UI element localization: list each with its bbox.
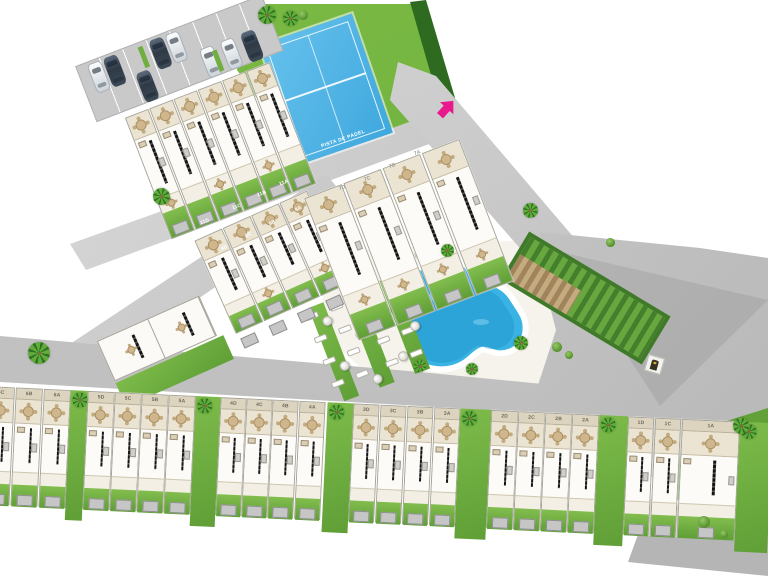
private-garden <box>268 497 293 520</box>
dining-table-icon <box>414 424 426 436</box>
furniture <box>138 140 148 148</box>
rear-terrace <box>431 491 456 505</box>
house-roof <box>569 450 596 499</box>
private-garden <box>403 503 428 526</box>
patio-terrace <box>114 404 140 429</box>
private-garden <box>242 495 267 518</box>
furniture <box>492 449 500 455</box>
furniture <box>368 459 374 468</box>
private-garden <box>0 483 9 506</box>
patio-terrace <box>572 426 598 451</box>
private-garden <box>624 513 649 536</box>
furniture <box>143 433 151 439</box>
palm-tree-icon <box>414 360 426 372</box>
garage-box <box>246 506 263 518</box>
house-roof <box>515 447 542 496</box>
furniture <box>116 431 124 437</box>
furniture <box>162 131 172 139</box>
private-garden <box>110 489 136 512</box>
rear-terrace <box>0 470 10 484</box>
dining-table-icon <box>360 183 374 197</box>
house-roof <box>378 441 404 490</box>
garage-box <box>444 288 463 304</box>
rear-terrace <box>296 485 321 499</box>
furniture <box>103 447 109 456</box>
furniture <box>354 241 363 252</box>
house-roof <box>0 422 12 471</box>
unit-label: 6A <box>54 392 61 398</box>
dining-table-icon <box>399 168 413 182</box>
dining-table-icon <box>126 345 137 356</box>
furniture <box>235 453 241 462</box>
grass-strip <box>593 415 628 546</box>
dining-table-icon <box>441 426 453 438</box>
furniture <box>264 235 274 244</box>
dining-table-icon <box>227 415 239 427</box>
patio-terrace <box>0 398 13 423</box>
dining-table-icon <box>704 438 716 450</box>
dining-table-icon <box>206 238 221 253</box>
house-roof <box>166 431 193 480</box>
palm-tree-icon <box>258 6 276 24</box>
unit-label: 6B <box>26 391 33 397</box>
patio-terrace <box>491 422 517 447</box>
furniture <box>314 457 320 466</box>
furniture <box>573 453 581 459</box>
unit-label: 1C <box>664 421 671 427</box>
furniture <box>656 457 664 463</box>
dining-table-icon <box>0 405 6 417</box>
patio-terrace <box>87 403 113 428</box>
patio-terrace <box>299 413 324 438</box>
private-garden <box>541 509 567 532</box>
garage-box <box>297 307 316 324</box>
furniture <box>17 427 25 433</box>
unit-label: 3A <box>444 411 451 417</box>
furniture <box>31 443 37 452</box>
furniture <box>587 470 593 479</box>
dining-table-icon <box>579 432 591 444</box>
dining-table-icon <box>214 179 224 189</box>
rear-terrace <box>377 489 402 503</box>
dining-table-icon <box>525 430 537 442</box>
furniture <box>642 472 648 481</box>
unit-label: 4A <box>309 404 316 410</box>
garage-box <box>353 511 370 523</box>
round-tree-icon <box>698 516 710 528</box>
dining-table-icon <box>158 109 172 123</box>
house-unit: 6B <box>10 388 43 507</box>
private-garden <box>11 484 37 507</box>
furniture <box>728 476 734 485</box>
garage-box <box>169 502 186 514</box>
rear-terrace <box>111 476 137 490</box>
patio-terrace <box>545 425 571 450</box>
patio-terrace <box>682 431 739 458</box>
dining-table-icon <box>661 436 673 448</box>
garage-box <box>294 287 313 304</box>
rear-terrace <box>404 490 429 504</box>
patio-terrace <box>353 415 378 440</box>
furniture <box>436 179 446 187</box>
unit-label: 3D <box>363 407 370 413</box>
unit-label: 2C <box>528 415 535 421</box>
garage-box <box>483 273 502 289</box>
patio-terrace <box>220 409 245 434</box>
round-tree-icon <box>552 342 562 352</box>
house-roof <box>351 439 377 488</box>
furniture <box>533 467 539 476</box>
grass-strip <box>454 408 491 539</box>
patio-terrace <box>246 410 271 435</box>
furniture <box>287 456 293 465</box>
private-garden <box>349 500 374 523</box>
dining-table-icon <box>51 407 63 419</box>
furniture <box>629 455 637 461</box>
private-garden <box>651 515 676 538</box>
dining-table-icon <box>438 264 448 274</box>
furniture <box>506 466 512 475</box>
garage-box <box>220 504 237 516</box>
furniture <box>301 440 309 446</box>
furniture <box>683 458 691 464</box>
dining-table-icon <box>121 411 133 423</box>
rear-terrace <box>243 482 268 496</box>
dining-table-icon <box>255 71 269 85</box>
furniture <box>394 226 403 237</box>
dining-table-icon <box>95 409 107 421</box>
furniture <box>395 461 401 470</box>
furniture <box>259 93 269 101</box>
furniture <box>433 211 442 222</box>
house-roof <box>405 442 431 491</box>
dining-table-icon <box>359 294 369 304</box>
furniture <box>408 445 416 451</box>
unit-label: 5B <box>151 397 158 403</box>
rear-terrace <box>138 477 164 491</box>
round-tree-icon <box>720 530 728 538</box>
dining-table-icon <box>477 249 487 259</box>
furniture <box>421 462 427 471</box>
garage-box <box>171 220 190 236</box>
rear-terrace <box>569 498 595 512</box>
garage-box <box>365 318 384 334</box>
grass-strip <box>138 46 151 68</box>
dining-table-icon <box>263 160 273 170</box>
house-roof <box>13 424 40 473</box>
unit-label: 3B <box>417 409 424 415</box>
garage-box <box>240 332 259 349</box>
private-garden <box>430 504 455 527</box>
unit-label: 1A <box>707 423 714 429</box>
dining-table-icon <box>207 90 221 104</box>
house-roof <box>112 428 139 477</box>
rear-terrace <box>542 496 568 510</box>
house-roof <box>542 448 569 497</box>
rear-terrace <box>515 495 541 509</box>
palm-tree-icon <box>523 203 538 218</box>
dining-table-icon <box>183 99 197 113</box>
guard-figure-icon <box>650 359 659 371</box>
patio-terrace <box>380 417 405 442</box>
furniture <box>89 430 97 436</box>
private-garden <box>137 490 163 513</box>
unit-label: 4C <box>256 402 263 408</box>
private-garden <box>216 494 241 517</box>
furniture <box>381 444 389 450</box>
patio-terrace <box>141 405 167 430</box>
furniture <box>208 260 218 269</box>
private-garden <box>295 498 320 521</box>
dining-table-icon <box>176 322 187 333</box>
private-garden <box>376 502 401 525</box>
dining-table-icon <box>253 417 265 429</box>
house-roof <box>625 452 651 501</box>
garage-box <box>491 517 508 529</box>
garage-box <box>272 507 289 519</box>
garage-box <box>698 527 715 539</box>
site-plan: PISTA DE PADEL 6C6B6A5D5C5B5A4D4C4B4A3D3… <box>0 0 768 576</box>
palm-tree-icon <box>153 188 170 205</box>
rear-terrace <box>625 500 650 514</box>
private-garden <box>39 486 65 509</box>
furniture <box>211 112 221 120</box>
grass-strip <box>734 422 768 553</box>
rear-terrace <box>40 473 66 487</box>
garage-box <box>265 300 284 317</box>
dining-table-icon <box>387 423 399 435</box>
patio-terrace <box>407 418 432 443</box>
furniture <box>354 443 362 449</box>
dining-table-icon <box>134 118 148 132</box>
house-roof <box>270 436 296 485</box>
furniture <box>519 450 527 456</box>
furniture <box>222 436 230 442</box>
rear-terrace <box>165 479 191 493</box>
rear-terrace <box>488 494 514 508</box>
unit-label: 2A <box>582 417 589 423</box>
dining-table-icon <box>148 412 160 424</box>
garage-box <box>16 495 33 507</box>
car-icon <box>240 29 265 63</box>
palm-tree-icon <box>28 342 50 364</box>
unit-label: 4B <box>282 403 289 409</box>
garage-box <box>299 508 316 520</box>
furniture <box>248 437 256 443</box>
furniture <box>184 451 190 460</box>
dining-table-icon <box>552 431 564 443</box>
dining-table-icon <box>321 198 335 212</box>
furniture <box>274 439 282 445</box>
palm-tree-icon <box>283 11 298 26</box>
unit-label: 3C <box>390 408 397 414</box>
furniture <box>236 247 246 256</box>
garage-box <box>44 496 61 508</box>
furniture <box>318 224 328 232</box>
garage-box <box>269 319 288 336</box>
patio-terrace <box>43 401 69 426</box>
furniture <box>472 195 481 206</box>
garage-box <box>237 313 256 330</box>
patio-terrace <box>168 407 194 432</box>
house-roof <box>139 429 166 478</box>
garage-box <box>655 525 672 537</box>
rear-terrace <box>652 502 677 516</box>
unit-label-strip: 6C <box>0 387 14 399</box>
private-garden <box>164 492 190 515</box>
garage-box <box>380 512 397 524</box>
house-roof <box>432 443 458 492</box>
house-roof <box>244 434 270 483</box>
house-unit: 4A <box>294 401 326 520</box>
furniture <box>170 434 178 440</box>
round-tree-icon <box>298 10 308 20</box>
garage-box <box>115 499 132 511</box>
garage-box <box>404 303 423 319</box>
house-roof <box>218 433 244 482</box>
private-garden <box>83 488 109 511</box>
furniture <box>669 474 675 483</box>
furniture <box>546 452 554 458</box>
unit-label: 4D <box>230 401 237 407</box>
garage-box <box>518 518 535 530</box>
furniture <box>3 442 9 451</box>
patio-terrace <box>272 412 297 437</box>
house-roof <box>41 425 68 474</box>
garage-box <box>142 501 159 513</box>
furniture <box>59 445 65 454</box>
furniture <box>186 121 196 129</box>
palm-tree-icon <box>733 418 749 434</box>
private-garden <box>487 507 513 530</box>
dining-table-icon <box>398 279 408 289</box>
stairwell <box>712 460 716 496</box>
rear-terrace <box>84 475 110 489</box>
dining-table-icon <box>498 428 510 440</box>
patio-terrace <box>518 423 544 448</box>
unit-label: 1D <box>637 420 644 426</box>
furniture <box>235 103 245 111</box>
rear-terrace <box>269 484 294 498</box>
rear-terrace <box>12 471 38 485</box>
sun-lounger <box>385 357 399 367</box>
furniture <box>435 446 443 452</box>
garage-box <box>545 520 562 532</box>
dining-table-icon <box>634 435 646 447</box>
garage-box <box>572 521 589 533</box>
house-roof <box>85 427 112 476</box>
dining-table-icon <box>360 422 372 434</box>
house-roof <box>488 446 515 495</box>
dining-table-icon <box>23 406 35 418</box>
round-tree-icon <box>606 238 615 247</box>
furniture <box>448 463 454 472</box>
furniture <box>358 209 368 217</box>
dining-table-icon <box>306 419 318 431</box>
rear-terrace <box>350 487 375 501</box>
palm-tree-icon <box>514 336 528 350</box>
house-roof <box>652 454 678 503</box>
dining-table-icon <box>175 413 187 425</box>
patio-terrace <box>434 419 459 444</box>
house-roof <box>679 455 737 506</box>
unit-label: 2D <box>501 413 508 419</box>
round-tree-icon <box>565 351 573 359</box>
garage-box <box>434 514 451 526</box>
furniture <box>157 449 163 458</box>
unit-label: 5A <box>178 398 185 404</box>
unit-label: 5D <box>98 394 105 400</box>
furniture <box>560 468 566 477</box>
furniture <box>45 428 53 434</box>
furniture <box>261 454 267 463</box>
sun-lounger <box>355 369 369 379</box>
house-roof <box>297 437 323 486</box>
private-garden <box>568 511 594 534</box>
dining-table-icon <box>279 418 291 430</box>
patio-terrace <box>655 430 680 455</box>
private-garden <box>514 508 540 531</box>
rear-terrace <box>217 481 242 495</box>
furniture <box>293 222 303 231</box>
dining-table-icon <box>231 81 245 95</box>
car-icon <box>135 69 160 103</box>
patio-terrace <box>628 428 653 453</box>
furniture <box>397 194 407 202</box>
garage-box <box>88 498 105 510</box>
dining-table-icon <box>439 153 453 167</box>
garage-box <box>628 524 645 536</box>
unit-label: 5C <box>125 396 132 402</box>
unit-label: 6C <box>0 390 5 396</box>
furniture <box>130 448 136 457</box>
patio-terrace <box>15 400 41 425</box>
garage-box <box>407 513 424 525</box>
garage-box <box>0 493 4 505</box>
palm-tree-icon <box>466 363 478 375</box>
unit-label: 2B <box>555 416 562 422</box>
palm-tree-icon <box>441 244 454 257</box>
